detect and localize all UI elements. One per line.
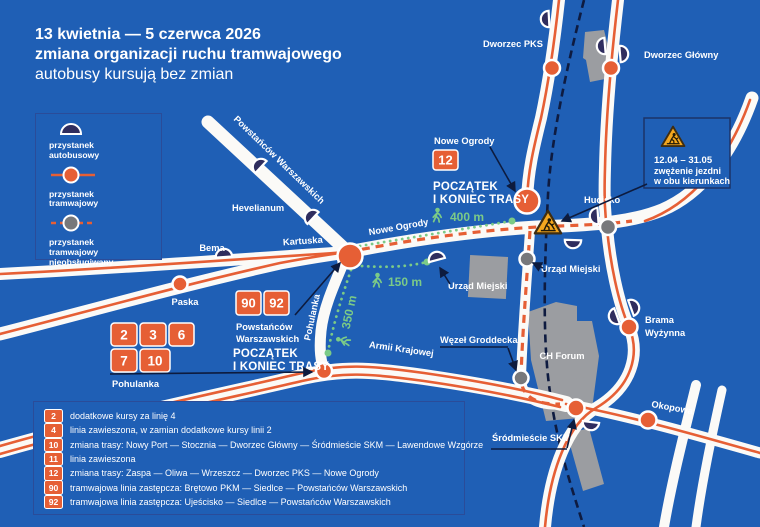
route-badge: 92	[44, 495, 63, 510]
routes-legend: 2 dodatkowe kursy za linię 4 4 linia zaw…	[33, 401, 465, 515]
walk-icon	[335, 335, 351, 346]
label-dworzec-pks: Dworzec PKS	[483, 39, 543, 49]
roadworks-line1: zwężenie jezdni	[654, 166, 721, 176]
label-dworzec-glowny: Dworzec Główny	[644, 50, 719, 60]
roadworks-box: 12.04 – 31.05 zwężenie jezdni w obu kier…	[562, 118, 730, 221]
walk-icon	[373, 273, 381, 287]
line-badge-92-label: 92	[269, 296, 283, 311]
walk-distance-150: 150 m	[388, 275, 422, 289]
legend-item-closed-tram-stop: przystanek tramwajowy nieobsługiwany	[49, 213, 161, 267]
label-ch-forum: CH Forum	[540, 351, 585, 361]
legend-label-line: nieobsługiwany	[49, 258, 161, 268]
route-badge: 90	[44, 480, 63, 495]
bus-stop-glowny-right	[619, 45, 629, 62]
line-badge-3-label: 3	[149, 328, 157, 343]
callout-nowe-ogrody-terminus: Nowe Ogrody 12 POCZĄTEK I KONIEC TRASY	[433, 136, 529, 206]
route-row-4: 4 linia zawieszona, w zamian dodatkowe k…	[44, 423, 464, 437]
route-badge: 4	[44, 423, 63, 438]
label-hevelianum: Hevelianum	[232, 203, 284, 213]
title-sub: autobusy kursują bez zmian	[35, 65, 342, 85]
tram-stop-icon	[49, 165, 97, 185]
closed-stop-wezel-groddecka	[514, 371, 529, 386]
route-row-10: 10 zmiana trasy: Nowy Port — Stocznia — …	[44, 438, 464, 452]
route-badge: 11	[44, 452, 63, 467]
closed-stop-urzad-miejski	[520, 252, 535, 267]
line-badge-90-label: 90	[241, 296, 255, 311]
bus-stop-urzad-miejski	[427, 250, 445, 262]
walk-icon	[433, 208, 441, 222]
line-badge-6-label: 6	[178, 328, 186, 343]
route-row-2: 2 dodatkowe kursy za linię 4	[44, 409, 464, 423]
wezel-pointer	[508, 348, 516, 370]
closed-stop-hucisko	[600, 219, 616, 235]
callout-stop-name: Nowe Ogrody	[434, 136, 495, 146]
route-description: zmiana trasy: Zaspa — Oliwa — Wrzeszcz —…	[70, 468, 379, 478]
tram-stop-paska	[173, 277, 188, 292]
route-row-90: 90 tramwajowa linia zastępcza: Brętowo P…	[44, 480, 464, 494]
label-armii-krajowej: Armii Krajowej	[368, 340, 434, 359]
walk-distance-400: 400 m	[450, 210, 484, 224]
stop-name-1: Powstańców	[236, 322, 293, 332]
route-badge: 2	[44, 409, 63, 424]
route-description: linia zawieszona, w zamian dodatkowe kur…	[70, 425, 272, 435]
label-kartuska: Kartuska	[283, 235, 324, 248]
terminus-powstancow-warszawskich	[338, 244, 363, 269]
label-bema: Bema	[199, 243, 225, 253]
route-description: dodatkowe kursy za linię 4	[70, 411, 176, 421]
stop-legend: przystanek autobusowy przystanek tramwaj…	[35, 113, 162, 260]
building-urzad-miejski	[468, 255, 508, 299]
legend-item-bus-stop: przystanek autobusowy	[49, 120, 161, 161]
line-badge-2-label: 2	[120, 328, 128, 343]
poster-title: 13 kwietnia — 5 czerwca 2026 zmiana orga…	[35, 25, 342, 85]
route-description: tramwajowa linia zastępcza: Brętowo PKM …	[70, 483, 407, 493]
tram-stop-srodmiescie-skm	[568, 400, 585, 417]
label-srodmiescie-skm: Śródmieście SKM	[492, 432, 571, 443]
walk-path-150m	[362, 262, 427, 267]
legend-label-line: autobusowy	[49, 151, 161, 161]
label-pohulanka-stop: Pohulanka	[112, 379, 160, 389]
terminus-caption-1: POCZĄTEK	[433, 181, 498, 193]
label-urzad-miejski-tram: Urząd Miejski	[541, 264, 600, 274]
route-row-11: 11 linia zawieszona	[44, 452, 464, 466]
title-dates: 13 kwietnia — 5 czerwca 2026	[35, 25, 342, 45]
route-description: linia zawieszona	[70, 454, 136, 464]
label-brama-wyzynna-2: Wyżynna	[645, 328, 686, 338]
bus-stop-pks	[540, 11, 549, 28]
tram-stop-brama-wyzynna	[621, 319, 638, 336]
route-badge: 12	[44, 466, 63, 481]
road-powstancow-warszawskich	[208, 122, 348, 252]
terminus-caption-1: POCZĄTEK	[233, 348, 298, 360]
legend-label-line: tramwajowy	[49, 199, 161, 209]
stop-name-2: Warszawskich	[236, 334, 300, 344]
roadworks-line2: w obu kierunkach	[653, 176, 730, 186]
label-wezel-groddecka: Węzeł Groddecka	[440, 335, 518, 345]
label-urzad-miejski-bus: Urząd Miejski	[448, 281, 507, 291]
tram-stop-dworzec-glowny	[603, 60, 619, 76]
line-badge-12-label: 12	[438, 153, 452, 168]
label-brama-wyzynna-1: Brama	[645, 315, 675, 325]
tram-stop-okopowa	[640, 412, 657, 429]
title-main: zmiana organizacji ruchu tramwajowego	[35, 45, 342, 65]
route-description: tramwajowa linia zastępcza: Ujeścisko — …	[70, 497, 391, 507]
label-paska: Paska	[172, 297, 200, 307]
line-badge-7-label: 7	[120, 354, 128, 369]
closed-tram-stop-icon	[49, 213, 97, 233]
tram-stop-dworzec-pks	[544, 60, 560, 76]
walk-endpoint	[325, 350, 332, 357]
route-row-92: 92 tramwajowa linia zastępcza: Ujeścisko…	[44, 495, 464, 509]
route-description: zmiana trasy: Nowy Port — Stocznia — Dwo…	[70, 440, 483, 450]
terminus-caption-2: I KONIEC TRASY	[233, 361, 329, 373]
roadworks-dates: 12.04 – 31.05	[654, 155, 713, 166]
tram-map-poster: 400 m 150 m 350 m Dworzec PKS	[0, 0, 760, 527]
urzad-bus-pointer	[440, 268, 450, 284]
legend-item-tram-stop: przystanek tramwajowy	[49, 165, 161, 210]
bus-stop-icon	[49, 120, 97, 136]
line-badge-10-label: 10	[147, 354, 162, 369]
bus-stop	[565, 240, 582, 249]
terminus-caption-2: I KONIEC TRASY	[433, 194, 529, 206]
route-row-12: 12 zmiana trasy: Zaspa — Oliwa — Wrzeszc…	[44, 466, 464, 480]
road-branch-2	[696, 390, 722, 527]
walk-endpoint	[509, 218, 516, 225]
route-badge: 10	[44, 438, 63, 453]
bus-stop-brama-right	[628, 297, 641, 315]
